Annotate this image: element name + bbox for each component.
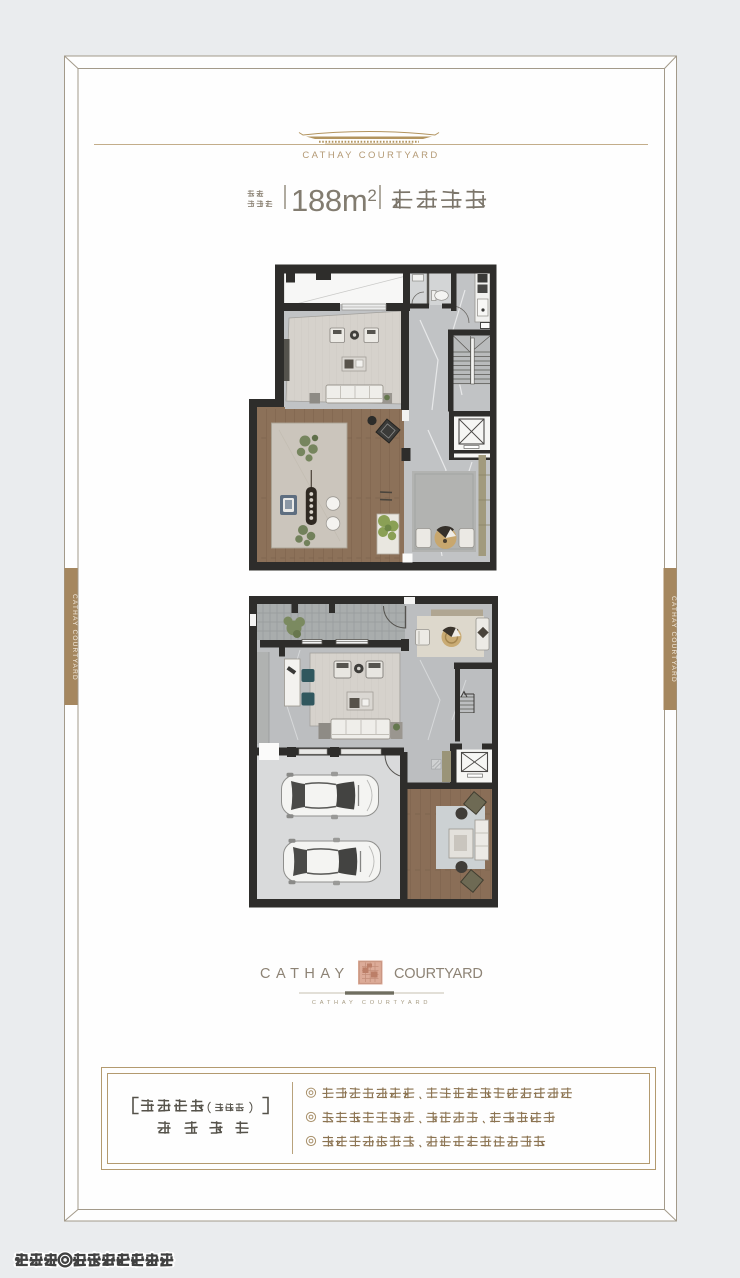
svg-text:CATHAY COURTYARD: CATHAY COURTYARD: [312, 1000, 431, 1006]
